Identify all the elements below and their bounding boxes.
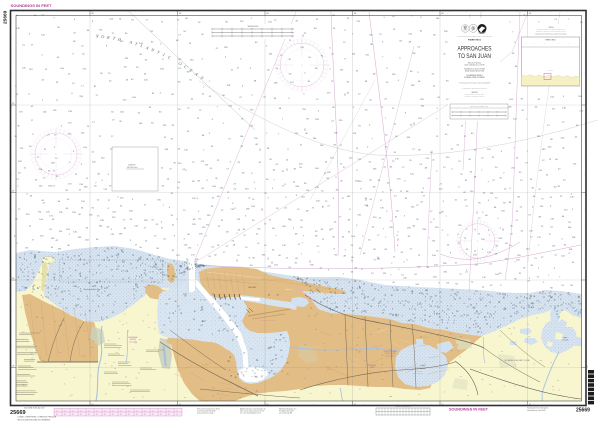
svg-text:6: 6 (26, 287, 27, 289)
svg-text:4: 4 (316, 288, 317, 290)
svg-text:16: 16 (83, 264, 85, 266)
svg-text:7: 7 (578, 304, 579, 306)
svg-text:mu: mu (377, 349, 379, 351)
svg-text:4: 4 (101, 288, 102, 290)
svg-text:30: 30 (271, 364, 273, 366)
svg-text:38: 38 (254, 377, 256, 379)
svg-text:18: 18 (219, 318, 221, 320)
svg-text:13: 13 (430, 296, 432, 298)
svg-text:3: 3 (62, 291, 63, 293)
svg-text:9: 9 (477, 332, 478, 334)
svg-text:36: 36 (236, 337, 238, 339)
svg-text:8: 8 (22, 272, 23, 274)
svg-text:6: 6 (147, 258, 148, 260)
svg-text:mu: mu (513, 327, 515, 329)
svg-text:16: 16 (137, 261, 139, 263)
svg-text:23: 23 (45, 259, 47, 261)
svg-text:23: 23 (451, 289, 453, 291)
svg-text:5: 5 (523, 301, 524, 303)
svg-text:2: 2 (520, 302, 521, 304)
svg-text:6: 6 (578, 296, 579, 298)
svg-text:4: 4 (384, 294, 385, 296)
svg-text:3: 3 (155, 264, 156, 266)
svg-text:3: 3 (554, 308, 555, 310)
svg-text:2: 2 (490, 295, 491, 297)
svg-text:2: 2 (28, 272, 29, 274)
svg-text:11: 11 (330, 292, 332, 294)
svg-text:un: un (511, 334, 513, 336)
svg-text:9: 9 (115, 302, 116, 304)
svg-text:18: 18 (232, 340, 234, 342)
svg-text:nu: nu (63, 335, 65, 337)
svg-text:35: 35 (261, 377, 263, 379)
svg-text:4: 4 (26, 260, 27, 262)
svg-text:13: 13 (475, 291, 477, 293)
svg-text:13: 13 (523, 308, 525, 310)
svg-text:2: 2 (200, 265, 201, 267)
svg-text:6: 6 (98, 306, 99, 308)
svg-text:8: 8 (482, 298, 483, 300)
svg-text:3: 3 (385, 307, 386, 309)
svg-text:2: 2 (364, 303, 365, 305)
svg-text:mu: mu (385, 372, 387, 374)
svg-text:9: 9 (62, 268, 63, 270)
svg-text:11: 11 (173, 276, 175, 278)
svg-text:9: 9 (89, 272, 90, 274)
svg-text:9: 9 (214, 309, 215, 311)
svg-text:7: 7 (125, 271, 126, 273)
svg-text:66°: 66° (529, 13, 532, 15)
svg-text:5: 5 (77, 265, 78, 267)
svg-text:2: 2 (538, 309, 539, 311)
svg-text:19: 19 (203, 266, 205, 268)
svg-text:11: 11 (108, 260, 110, 262)
svg-text:5: 5 (392, 301, 393, 303)
svg-text:16: 16 (97, 255, 99, 257)
svg-text:23: 23 (309, 286, 311, 288)
svg-text:4: 4 (419, 293, 420, 295)
svg-text:23: 23 (479, 328, 481, 330)
svg-text:12: 12 (204, 300, 206, 302)
svg-text:13: 13 (65, 308, 67, 310)
svg-text:19: 19 (54, 288, 56, 290)
svg-text:8: 8 (139, 277, 140, 279)
svg-text:11: 11 (27, 276, 29, 278)
svg-text:30: 30 (243, 376, 245, 378)
svg-text:3: 3 (48, 298, 49, 300)
svg-text:38: 38 (254, 373, 256, 375)
svg-text:19: 19 (466, 331, 468, 333)
svg-text:11: 11 (80, 291, 82, 293)
svg-text:3: 3 (439, 314, 440, 316)
svg-text:11: 11 (168, 266, 170, 268)
svg-text:2: 2 (328, 285, 329, 287)
svg-text:7: 7 (527, 294, 528, 296)
svg-text:13: 13 (122, 262, 124, 264)
svg-text:nu: nu (329, 393, 331, 395)
svg-text:nu: nu (118, 348, 120, 350)
svg-text:11: 11 (133, 289, 135, 291)
svg-text:23: 23 (67, 257, 69, 259)
svg-text:13: 13 (175, 277, 177, 279)
svg-text:4: 4 (30, 263, 31, 265)
svg-text:13: 13 (99, 281, 101, 283)
svg-text:11: 11 (38, 252, 40, 254)
svg-text:9: 9 (67, 277, 68, 279)
svg-text:13: 13 (557, 306, 559, 308)
svg-text:7: 7 (158, 266, 159, 268)
svg-text:23: 23 (382, 310, 384, 312)
svg-text:3: 3 (20, 258, 21, 260)
svg-text:4: 4 (180, 266, 181, 268)
svg-text:13: 13 (62, 271, 64, 273)
svg-text:San José: San José (420, 368, 426, 370)
svg-text:11: 11 (128, 278, 130, 280)
svg-text:8: 8 (425, 310, 426, 312)
svg-text:Laguna: Laguna (563, 337, 568, 339)
svg-text:30: 30 (228, 305, 230, 307)
svg-text:un: un (118, 338, 120, 340)
svg-text:11: 11 (543, 297, 545, 299)
svg-text:nu: nu (553, 390, 555, 392)
svg-text:nu: nu (364, 360, 366, 362)
svg-text:11: 11 (104, 251, 106, 253)
svg-text:19: 19 (45, 297, 47, 299)
svg-text:9: 9 (97, 283, 98, 285)
svg-text:SOUNDINGS IN FEET: SOUNDINGS IN FEET (449, 407, 489, 412)
svg-text:30: 30 (188, 329, 190, 331)
svg-text:9: 9 (282, 371, 283, 373)
svg-text:36: 36 (275, 359, 277, 361)
svg-text:5: 5 (409, 287, 410, 289)
svg-text:DUMPING: DUMPING (128, 165, 136, 167)
svg-text:5: 5 (545, 304, 546, 306)
svg-text:11: 11 (53, 277, 55, 279)
svg-text:36: 36 (202, 321, 204, 323)
svg-text:13: 13 (160, 273, 162, 275)
svg-text:2: 2 (150, 272, 151, 274)
svg-text:3: 3 (378, 290, 379, 292)
svg-text:36: 36 (237, 374, 239, 376)
svg-text:24: 24 (201, 325, 203, 327)
svg-text:4: 4 (567, 308, 568, 310)
svg-text:7: 7 (548, 302, 549, 304)
svg-text:8: 8 (396, 314, 397, 316)
svg-text:5: 5 (453, 323, 454, 325)
svg-text:8: 8 (467, 307, 468, 309)
svg-text:19: 19 (352, 293, 354, 295)
svg-text:5: 5 (163, 266, 164, 268)
svg-text:11: 11 (414, 309, 416, 311)
svg-text:6: 6 (534, 296, 535, 298)
svg-text:nu: nu (552, 386, 554, 388)
svg-text:30: 30 (184, 296, 186, 298)
svg-text:66°: 66° (442, 13, 445, 15)
svg-text:3: 3 (176, 270, 177, 272)
svg-text:36: 36 (232, 307, 234, 309)
svg-text:23: 23 (297, 278, 299, 280)
svg-text:6: 6 (521, 306, 522, 308)
svg-text:5: 5 (162, 274, 163, 276)
svg-text:30: 30 (229, 320, 231, 322)
svg-text:2: 2 (100, 273, 101, 275)
svg-text:mu: mu (184, 397, 186, 399)
svg-text:3: 3 (423, 294, 424, 296)
svg-text:6: 6 (476, 304, 477, 306)
svg-text:9: 9 (179, 310, 180, 312)
svg-text:23: 23 (72, 282, 74, 284)
svg-text:4: 4 (314, 300, 315, 302)
svg-text:4: 4 (162, 264, 163, 266)
svg-text:6: 6 (362, 290, 363, 292)
svg-text:18: 18 (236, 326, 238, 328)
svg-text:nu: nu (529, 336, 531, 338)
svg-text:9: 9 (156, 269, 157, 271)
svg-text:18°: 18° (12, 278, 15, 280)
svg-text:2: 2 (422, 321, 423, 323)
svg-text:7: 7 (355, 281, 356, 283)
svg-text:9: 9 (222, 321, 223, 323)
svg-text:11: 11 (459, 298, 461, 300)
svg-text:36: 36 (271, 370, 273, 372)
svg-text:2: 2 (307, 278, 308, 280)
svg-text:4: 4 (101, 293, 102, 295)
svg-text:7: 7 (32, 270, 33, 272)
svg-text:2: 2 (158, 283, 159, 285)
svg-text:7: 7 (48, 263, 49, 265)
svg-text:9: 9 (92, 301, 93, 303)
svg-text:16: 16 (469, 327, 471, 329)
svg-text:9: 9 (136, 291, 137, 293)
svg-text:8: 8 (68, 291, 69, 293)
svg-text:19: 19 (574, 311, 576, 313)
svg-text:2: 2 (510, 321, 511, 323)
svg-text:8: 8 (70, 276, 71, 278)
svg-text:19: 19 (73, 286, 75, 288)
svg-text:3: 3 (23, 276, 24, 278)
svg-text:16: 16 (531, 307, 533, 309)
svg-text:7: 7 (158, 270, 159, 272)
svg-text:19: 19 (411, 293, 413, 295)
svg-text:8: 8 (87, 296, 88, 298)
svg-text:23: 23 (512, 308, 514, 310)
svg-text:7: 7 (466, 316, 467, 318)
svg-text:11: 11 (18, 277, 20, 279)
svg-text:3: 3 (446, 314, 447, 316)
svg-text:11: 11 (184, 272, 186, 274)
svg-text:un: un (51, 371, 53, 373)
svg-text:2: 2 (141, 296, 142, 298)
svg-text:19: 19 (454, 293, 456, 295)
svg-text:8: 8 (477, 317, 478, 319)
svg-text:19: 19 (341, 288, 343, 290)
svg-text:nu: nu (138, 373, 140, 375)
svg-text:2: 2 (437, 302, 438, 304)
svg-text:9: 9 (310, 293, 311, 295)
svg-text:5: 5 (295, 277, 296, 279)
svg-text:9: 9 (494, 307, 495, 309)
svg-text:nu: nu (458, 350, 460, 352)
svg-text:nu: nu (26, 324, 28, 326)
svg-text:24: 24 (168, 318, 170, 320)
svg-text:8: 8 (314, 284, 315, 286)
svg-text:6: 6 (69, 268, 70, 270)
svg-text:24: 24 (193, 319, 195, 321)
svg-text:36: 36 (198, 330, 200, 332)
svg-text:6: 6 (542, 308, 543, 310)
svg-text:13: 13 (148, 285, 150, 287)
svg-text:3: 3 (402, 301, 403, 303)
svg-text:16: 16 (530, 296, 532, 298)
svg-text:9: 9 (480, 300, 481, 302)
svg-text:66°: 66° (179, 13, 182, 15)
svg-text:9: 9 (550, 292, 551, 294)
svg-text:4: 4 (457, 311, 458, 313)
svg-text:12: 12 (275, 355, 277, 357)
svg-text:2: 2 (66, 254, 67, 256)
svg-text:nu: nu (40, 330, 42, 332)
svg-text:11: 11 (367, 297, 369, 299)
svg-text:9: 9 (74, 309, 75, 311)
svg-text:6: 6 (169, 313, 170, 315)
svg-text:3: 3 (332, 310, 333, 312)
svg-text:nu: nu (515, 364, 517, 366)
svg-text:4: 4 (355, 305, 356, 307)
svg-text:3: 3 (144, 270, 145, 272)
svg-text:Ensenada de Boca Vieja: Ensenada de Boca Vieja (84, 289, 101, 291)
svg-text:35: 35 (241, 373, 243, 375)
svg-text:6: 6 (441, 301, 442, 303)
svg-text:5: 5 (187, 267, 188, 269)
svg-text:6: 6 (442, 322, 443, 324)
svg-text:mu: mu (83, 356, 85, 358)
svg-text:16: 16 (412, 321, 414, 323)
svg-text:11: 11 (403, 305, 405, 307)
svg-text:5: 5 (338, 284, 339, 286)
svg-text:5: 5 (437, 305, 438, 307)
svg-text:3: 3 (335, 303, 336, 305)
svg-text:23: 23 (407, 302, 409, 304)
svg-text:8: 8 (517, 312, 518, 314)
svg-text:23: 23 (38, 272, 40, 274)
svg-text:6: 6 (481, 312, 482, 314)
svg-text:23: 23 (454, 316, 456, 318)
svg-text:13: 13 (441, 319, 443, 321)
svg-text:13: 13 (77, 298, 79, 300)
svg-text:7: 7 (420, 318, 421, 320)
svg-text:13: 13 (528, 307, 530, 309)
svg-text:8: 8 (327, 297, 328, 299)
svg-text:4: 4 (484, 317, 485, 319)
svg-text:11: 11 (515, 306, 517, 308)
svg-text:23: 23 (329, 308, 331, 310)
svg-text:11: 11 (556, 314, 558, 316)
svg-text:23: 23 (560, 295, 562, 297)
svg-text:5: 5 (402, 315, 403, 317)
svg-text:4: 4 (353, 310, 354, 312)
svg-text:11: 11 (371, 285, 373, 287)
svg-text:9: 9 (48, 292, 49, 294)
svg-text:24: 24 (168, 298, 170, 300)
svg-text:4: 4 (355, 297, 356, 299)
svg-text:6: 6 (435, 306, 436, 308)
svg-text:SOUNDINGS IN FEET: SOUNDINGS IN FEET (466, 75, 482, 77)
svg-text:PUERTO RICO: PUERTO RICO (468, 39, 482, 41)
svg-text:11: 11 (145, 275, 147, 277)
svg-text:7: 7 (106, 279, 107, 281)
svg-text:3: 3 (450, 305, 451, 307)
svg-text:11: 11 (77, 304, 79, 306)
svg-text:6: 6 (229, 370, 230, 372)
svg-text:un: un (310, 393, 312, 395)
svg-text:O: O (101, 34, 105, 39)
svg-text:un: un (112, 385, 114, 387)
svg-text:13: 13 (27, 280, 29, 282)
svg-text:6: 6 (337, 307, 338, 309)
svg-text:5: 5 (412, 306, 413, 308)
svg-text:6: 6 (560, 299, 561, 301)
svg-text:66°: 66° (267, 13, 270, 15)
svg-text:11: 11 (86, 263, 88, 265)
svg-text:4: 4 (493, 314, 494, 316)
svg-text:nn: nn (148, 327, 150, 329)
svg-text:nu: nu (437, 335, 439, 337)
svg-text:13: 13 (414, 317, 416, 319)
svg-text:7: 7 (329, 286, 330, 288)
svg-text:nn: nn (44, 362, 46, 364)
svg-text:2: 2 (184, 264, 185, 266)
svg-text:7: 7 (380, 306, 381, 308)
svg-text:8: 8 (504, 295, 505, 297)
svg-text:4: 4 (489, 317, 490, 319)
svg-text:5: 5 (39, 287, 40, 289)
svg-text:8: 8 (63, 254, 64, 256)
svg-text:24: 24 (283, 337, 285, 339)
svg-text:la Torrecilla: la Torrecilla (562, 340, 569, 342)
svg-text:6: 6 (89, 262, 90, 264)
svg-text:36: 36 (277, 295, 279, 297)
svg-text:3: 3 (97, 295, 98, 297)
svg-text:7: 7 (545, 293, 546, 295)
svg-text:11: 11 (158, 256, 160, 258)
svg-text:nu: nu (147, 362, 149, 364)
svg-text:9: 9 (145, 270, 146, 272)
svg-text:19: 19 (162, 261, 164, 263)
svg-text:4: 4 (144, 287, 145, 289)
svg-text:24: 24 (224, 329, 226, 331)
svg-text:mu: mu (460, 376, 462, 378)
svg-text:6: 6 (78, 287, 79, 289)
svg-text:23: 23 (181, 273, 183, 275)
svg-text:12: 12 (163, 324, 165, 326)
svg-text:nu: nu (129, 392, 131, 394)
svg-text:7: 7 (73, 296, 74, 298)
svg-text:SOUNDINGS IN FEET: SOUNDINGS IN FEET (11, 3, 53, 8)
svg-text:9: 9 (142, 263, 143, 265)
svg-text:nu: nu (350, 357, 352, 359)
svg-text:16: 16 (319, 280, 321, 282)
svg-text:4: 4 (172, 279, 173, 281)
svg-text:5: 5 (520, 296, 521, 298)
svg-text:38: 38 (262, 366, 264, 368)
svg-text:13: 13 (460, 316, 462, 318)
svg-text:6: 6 (430, 316, 431, 318)
svg-text:PUERTO RICO: PUERTO RICO (545, 40, 556, 42)
svg-text:19: 19 (33, 277, 35, 279)
svg-text:18: 18 (230, 375, 232, 377)
svg-text:13: 13 (106, 317, 108, 319)
svg-text:18: 18 (220, 306, 222, 308)
